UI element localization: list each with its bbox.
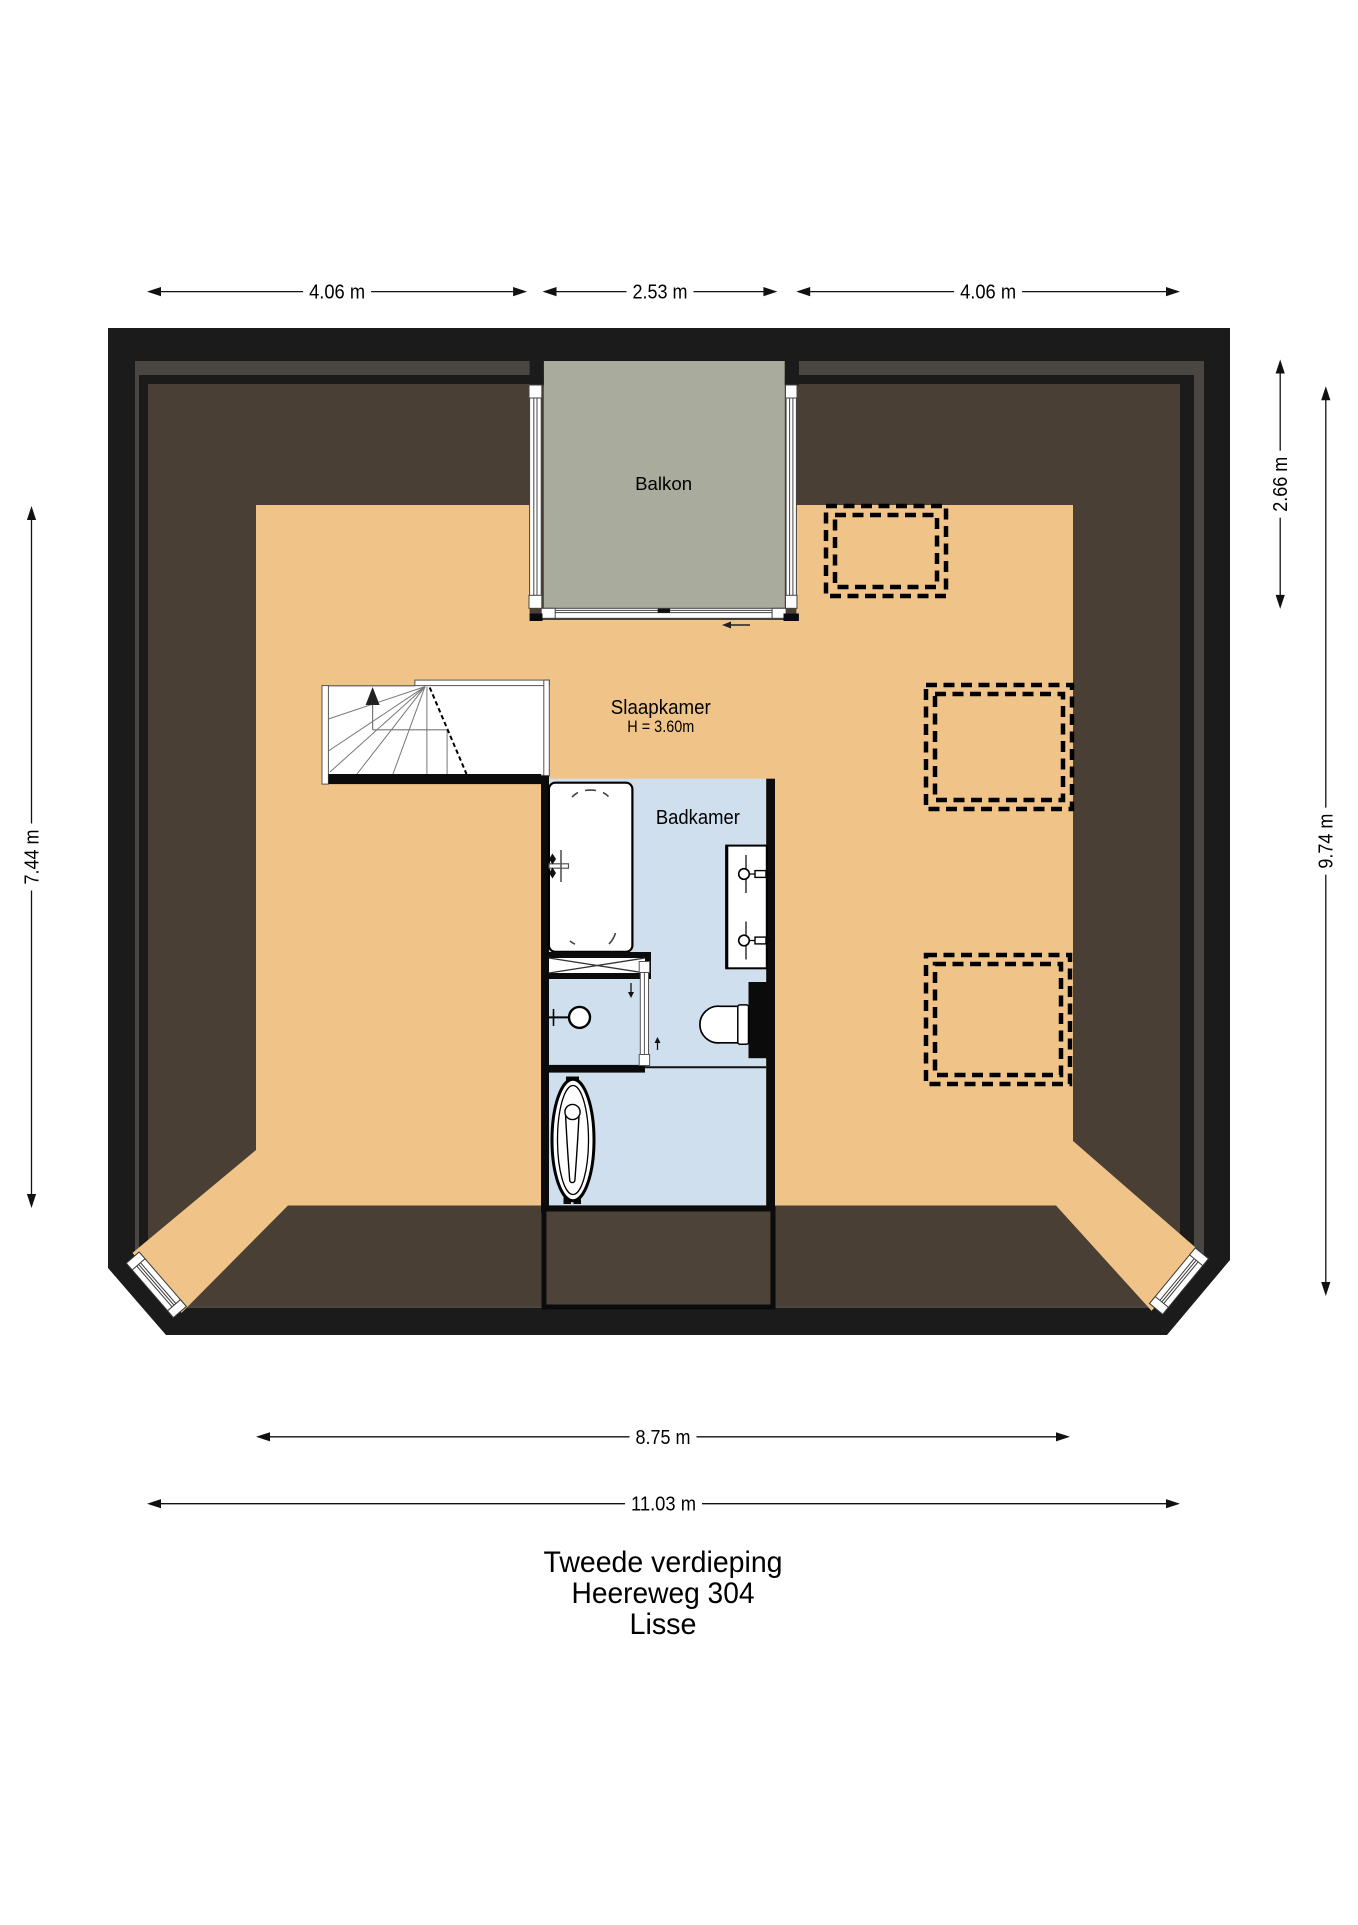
svg-text:4.06 m: 4.06 m	[960, 282, 1016, 304]
svg-text:2.66 m: 2.66 m	[1270, 457, 1292, 512]
svg-text:11.03 m: 11.03 m	[631, 1494, 696, 1516]
svg-text:Badkamer: Badkamer	[656, 807, 740, 829]
svg-text:4.06 m: 4.06 m	[309, 282, 365, 304]
svg-text:Slaapkamer: Slaapkamer	[611, 697, 711, 719]
svg-text:8.75 m: 8.75 m	[636, 1427, 691, 1449]
svg-text:Tweede verdieping: Tweede verdieping	[544, 1546, 783, 1579]
svg-text:9.74 m: 9.74 m	[1316, 814, 1338, 869]
svg-text:7.44 m: 7.44 m	[21, 830, 43, 885]
svg-text:2.53 m: 2.53 m	[633, 282, 688, 304]
svg-text:Balkon: Balkon	[635, 474, 692, 494]
svg-text:Lisse: Lisse	[630, 1608, 697, 1641]
svg-text:Heereweg 304: Heereweg 304	[572, 1577, 755, 1610]
svg-text:H = 3.60m: H = 3.60m	[627, 717, 694, 736]
